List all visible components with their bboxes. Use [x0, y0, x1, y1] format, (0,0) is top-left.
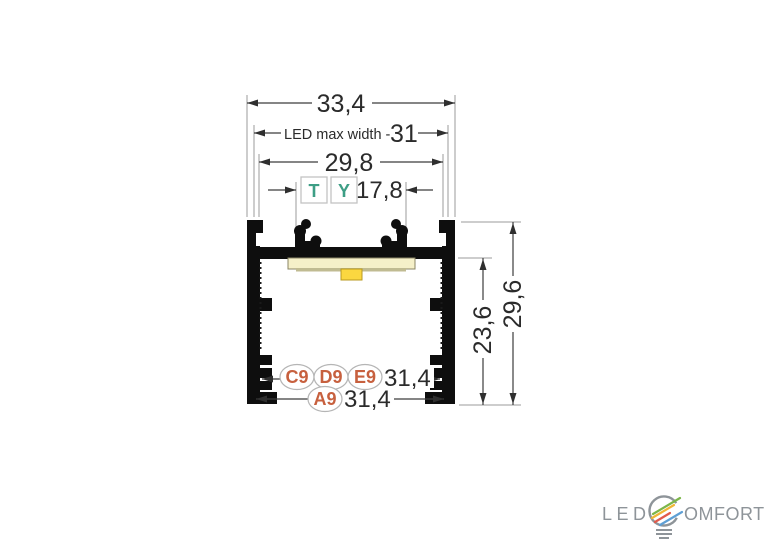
dim-clip-spacing: 17,8: [356, 177, 403, 204]
badge-c9: C9: [285, 367, 308, 387]
technical-drawing: 33,4 LED max width - 31 29,8 17,8 23,6 2…: [0, 0, 768, 551]
badge-a9: A9: [313, 389, 336, 409]
logo-prefix: LED: [602, 504, 651, 524]
profile-left-tooth: [260, 381, 272, 390]
badge-d9: D9: [319, 367, 342, 387]
lightbulb-icon: [650, 496, 682, 538]
led-chip: [341, 269, 362, 280]
profile-right-cap: [439, 220, 455, 233]
profile-right-tooth: [430, 355, 442, 365]
dim-outer-width: 33,4: [317, 90, 366, 118]
dim-led-max-width-label: LED max width -: [284, 127, 391, 143]
mounting-clip-left: [294, 219, 322, 248]
mounting-type-markers: T Y: [301, 177, 357, 203]
logo-suffix: OMFORT: [684, 504, 765, 524]
dim-groove-width-top: 31,4: [384, 365, 431, 392]
led-pcb: [288, 258, 415, 269]
dim-opening-width: 29,8: [325, 149, 374, 177]
profile-ceiling: [247, 247, 455, 259]
dim-led-max-width-value: 31: [390, 120, 418, 148]
profile-left-tab: [260, 298, 272, 311]
dim-groove-width-bottom: 31,4: [344, 386, 391, 413]
profile-right-tab: [430, 298, 442, 311]
profile-left-tooth: [260, 355, 272, 365]
mounting-clip-right: [381, 219, 409, 248]
logo: LED OMFORT: [602, 496, 765, 538]
dim-inner-height: 23,6: [469, 306, 497, 355]
badge-e9: E9: [354, 367, 376, 387]
marker-y: Y: [338, 181, 350, 201]
marker-t: T: [309, 181, 320, 201]
profile-left-cap: [247, 220, 263, 233]
dim-outer-height: 29,6: [499, 280, 527, 329]
led-strip: [288, 258, 415, 280]
